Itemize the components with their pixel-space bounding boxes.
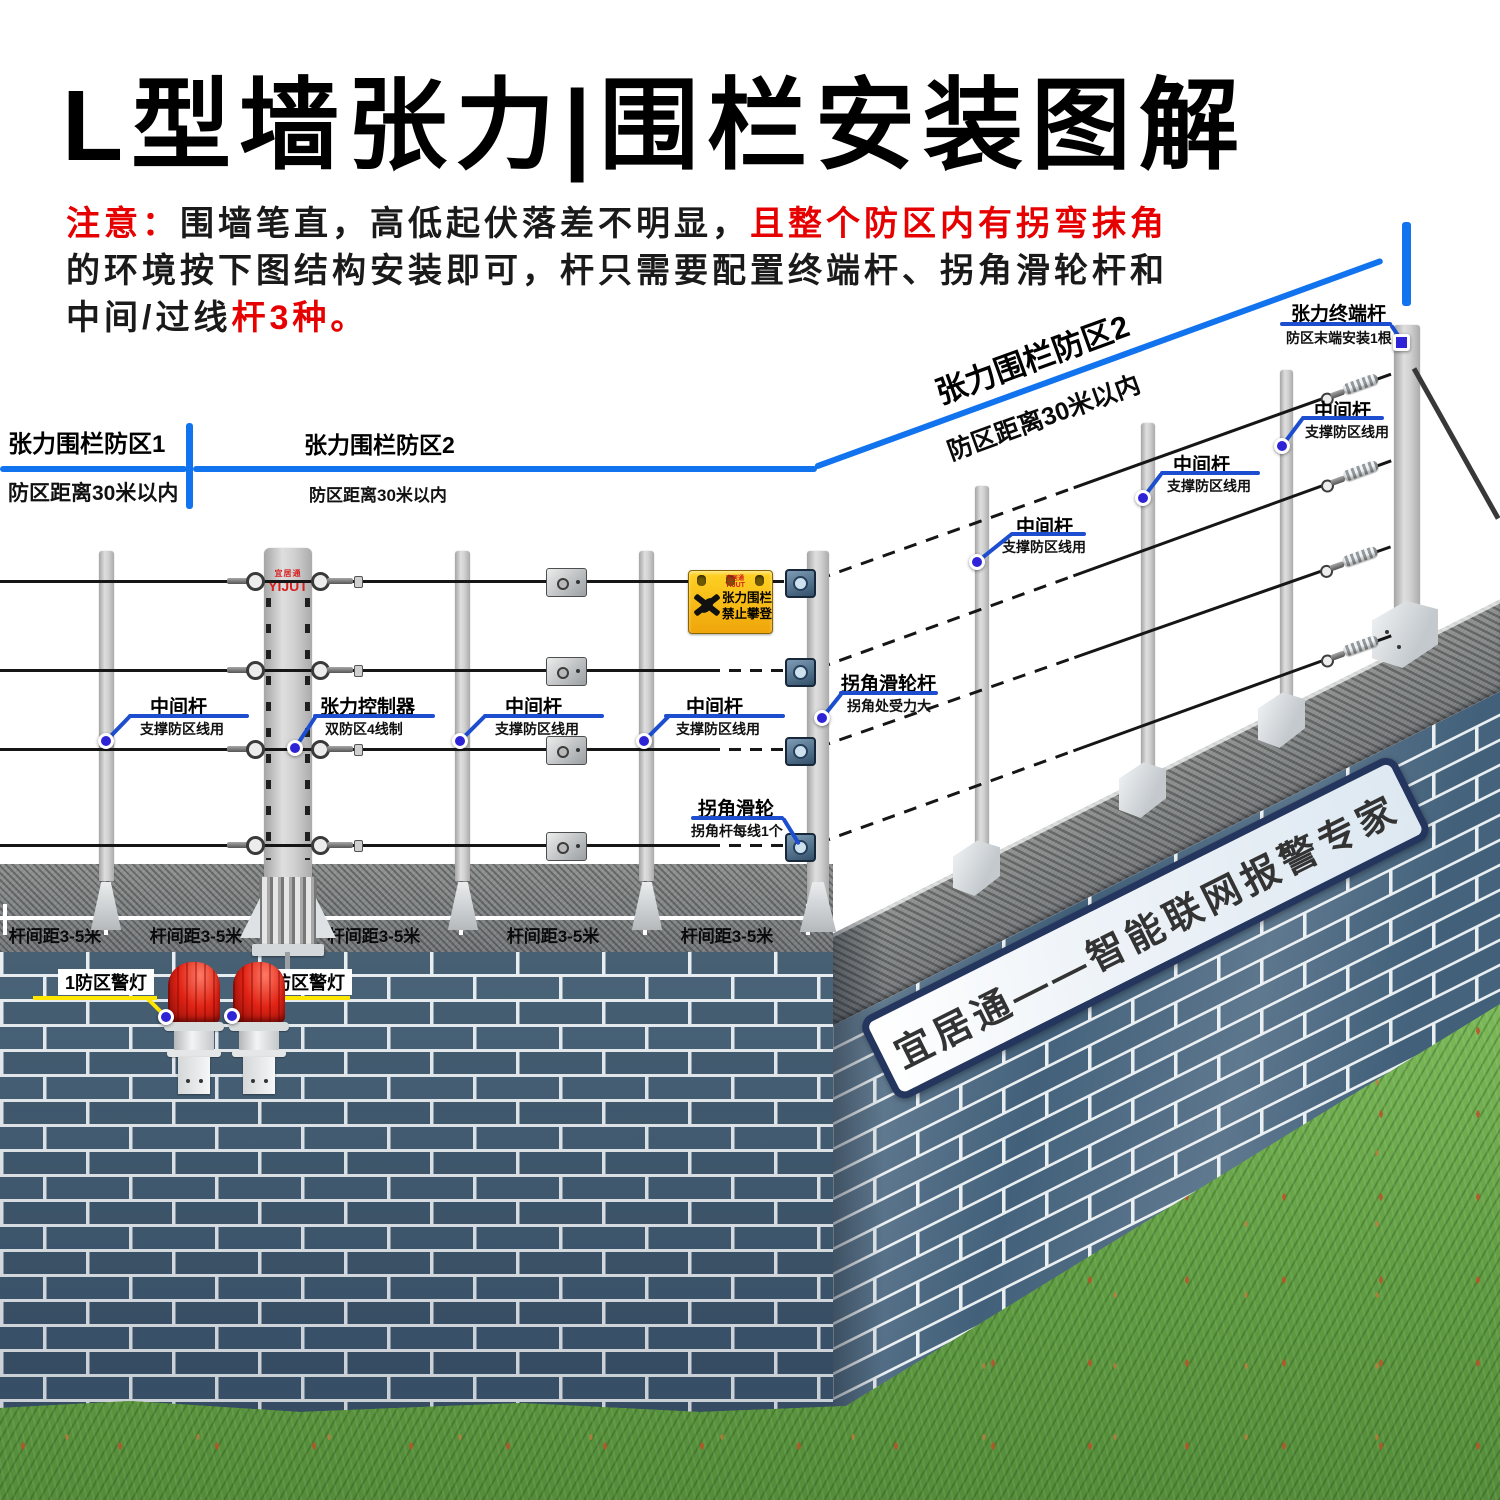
rod-collar bbox=[354, 744, 363, 756]
page-title: L型墙张力|围栏安装图解 bbox=[62, 44, 1247, 189]
label-underline bbox=[839, 691, 938, 695]
corner-pulley-device bbox=[785, 737, 816, 766]
tension-spring bbox=[1341, 545, 1379, 567]
poster-canvas: 宜居通——智能联网报警专家 杆间距3-5米 杆间距3-5米 杆间距3-5米 杆间… bbox=[0, 0, 1500, 1500]
junction-plate bbox=[546, 832, 587, 861]
note-line-3: 中间/过线杆3种。 bbox=[66, 290, 368, 339]
corner-pulley-device bbox=[785, 569, 816, 598]
spacing-label: 杆间距3-5米 bbox=[5, 922, 105, 947]
mid-post-label-sub: 支撑防区线用 bbox=[1305, 422, 1389, 442]
plate-screw bbox=[557, 667, 569, 679]
note-black-2: 的环境按下图结构安装即可，杆只需要配置终端杆、拐角滑轮杆和 bbox=[66, 252, 1168, 290]
junction-plate bbox=[546, 736, 587, 765]
controller-bolt-column bbox=[266, 598, 271, 860]
rod-collar bbox=[354, 840, 363, 852]
tension-spring bbox=[1342, 372, 1380, 394]
warning-sign: 宜居通 YIJUT 张力围栏 禁止攀登 bbox=[688, 570, 773, 634]
spacing-label: 杆间距3-5米 bbox=[677, 922, 777, 947]
mid-post bbox=[455, 551, 470, 881]
warning-light-body bbox=[174, 1031, 214, 1052]
plate-dot bbox=[576, 580, 580, 584]
label-dot bbox=[1393, 334, 1410, 351]
turnbuckle-rod bbox=[327, 667, 353, 673]
note-black-1: 围墙笔直，高低起伏落差不明显， bbox=[180, 205, 750, 243]
warning-light-flange bbox=[232, 1050, 286, 1057]
label-dot bbox=[452, 733, 468, 749]
warning-light-bracket bbox=[243, 1057, 275, 1094]
front-wall-bricks bbox=[0, 952, 833, 1412]
controller-base-striped bbox=[259, 877, 317, 947]
label-dot bbox=[98, 733, 114, 749]
mid-post-perspective bbox=[975, 486, 989, 858]
note-black-3: 中间/过线 bbox=[66, 299, 231, 337]
corner-pole-label-sub: 拐角处受力大 bbox=[847, 696, 931, 716]
zone2-line bbox=[193, 466, 817, 472]
mid-post bbox=[99, 551, 114, 881]
junction-plate bbox=[546, 657, 587, 686]
bracket-screw bbox=[264, 1079, 268, 1083]
label-dot bbox=[1135, 490, 1151, 506]
label-underline bbox=[1160, 471, 1260, 475]
mid-post-label-sub: 支撑防区线用 bbox=[1167, 476, 1251, 496]
warning-light-collar bbox=[164, 1022, 224, 1031]
label-dot bbox=[287, 740, 303, 756]
note-red-3: 杆3种。 bbox=[231, 299, 368, 337]
label-underline bbox=[128, 714, 249, 718]
stay-cable bbox=[1412, 367, 1500, 519]
junction-plate bbox=[546, 568, 587, 597]
base-screw bbox=[1385, 630, 1389, 634]
sign-text-line2: 禁止攀登 bbox=[722, 607, 772, 623]
bug-icon bbox=[691, 585, 723, 627]
wire-dashed-segment bbox=[817, 574, 1074, 669]
label-underline bbox=[664, 714, 785, 718]
wire-eyelet bbox=[246, 661, 265, 680]
plate-dot bbox=[576, 844, 580, 848]
wire-eyelet bbox=[246, 572, 265, 591]
turnbuckle-rod bbox=[327, 578, 353, 584]
label-underline bbox=[313, 714, 435, 718]
zone1-title: 张力围栏防区1 bbox=[8, 424, 165, 459]
turnbuckle-rod bbox=[327, 842, 353, 848]
mid-post bbox=[639, 551, 654, 881]
mid-post-label-sub: 支撑防区线用 bbox=[140, 719, 224, 739]
zone1-line bbox=[0, 466, 187, 472]
bracket-screw bbox=[186, 1079, 190, 1083]
turnbuckle-rod bbox=[327, 746, 353, 752]
light1-underline bbox=[33, 996, 157, 1000]
sign-text: 张力围栏 禁止攀登 bbox=[722, 591, 772, 622]
plate-dot bbox=[576, 669, 580, 673]
plate-dot bbox=[576, 748, 580, 752]
zone2-title: 张力围栏防区2 bbox=[304, 426, 455, 460]
zone-divider-bar bbox=[186, 423, 193, 509]
zone-end-bar bbox=[1402, 222, 1411, 306]
zone2-sub: 防区距离30米以内 bbox=[309, 481, 447, 506]
spacing-label: 杆间距3-5米 bbox=[146, 922, 246, 947]
bracket-screw bbox=[251, 1079, 255, 1083]
plate-screw bbox=[557, 746, 569, 758]
warning-light-bracket bbox=[178, 1057, 210, 1094]
zone-wire-perspective bbox=[811, 456, 1399, 671]
controller-label-sub: 双防区4线制 bbox=[325, 719, 403, 739]
base-screw bbox=[1397, 645, 1401, 649]
bracket-screw bbox=[199, 1079, 203, 1083]
mid-post-perspective bbox=[1141, 423, 1155, 795]
wire-eyelet bbox=[246, 740, 265, 759]
tension-spring bbox=[1342, 459, 1380, 482]
plate-screw bbox=[557, 578, 569, 590]
corner-pulley-device bbox=[785, 658, 816, 687]
label-dot bbox=[1274, 438, 1290, 454]
mid-post-label-sub: 支撑防区线用 bbox=[676, 719, 760, 739]
warning-light-collar bbox=[229, 1022, 289, 1031]
warning-light-dome bbox=[233, 962, 285, 1023]
plate-screw bbox=[557, 842, 569, 854]
wire-dashed-segment bbox=[817, 749, 1074, 844]
warning-light-dome bbox=[168, 962, 220, 1023]
corner-pulley-label-sub: 拐角杆每线1个 bbox=[691, 821, 783, 841]
warning-light-body bbox=[239, 1031, 279, 1052]
light1-label-text: 1防区警灯 bbox=[65, 969, 147, 995]
mid-post-label-sub: 支撑防区线用 bbox=[1002, 537, 1086, 557]
terminal-label-sub: 防区末端安装1根 bbox=[1286, 328, 1392, 348]
label-underline bbox=[1301, 416, 1384, 420]
wire-eyelet bbox=[246, 836, 265, 855]
note-red-1: 且整个防区内有拐弯抹角 bbox=[750, 205, 1168, 243]
label-underline bbox=[1010, 532, 1086, 536]
rod-collar bbox=[354, 576, 363, 588]
corner-pulley-device bbox=[785, 833, 816, 862]
spacing-label: 杆间距3-5米 bbox=[503, 922, 603, 947]
label-underline bbox=[483, 714, 604, 718]
warning-light-flange bbox=[167, 1050, 221, 1057]
spacing-scale-line bbox=[0, 916, 812, 920]
pulley-wheel bbox=[793, 744, 808, 759]
rod-collar bbox=[354, 665, 363, 677]
note-tag: 注意： bbox=[66, 205, 180, 243]
label-dot bbox=[636, 733, 652, 749]
label-dot bbox=[969, 554, 985, 570]
spacing-label: 杆间距3-5米 bbox=[324, 922, 424, 947]
note-line-2: 的环境按下图结构安装即可，杆只需要配置终端杆、拐角滑轮杆和 bbox=[66, 243, 1168, 292]
label-dot bbox=[814, 710, 830, 726]
light2-dot bbox=[224, 1008, 240, 1024]
label-underline bbox=[1280, 322, 1392, 326]
mid-post-label-sub: 支撑防区线用 bbox=[495, 719, 579, 739]
pulley-wheel bbox=[793, 665, 808, 680]
note-line-1: 注意：围墙笔直，高低起伏落差不明显，且整个防区内有拐弯抹角 bbox=[66, 196, 1168, 245]
light1-dot bbox=[158, 1009, 174, 1025]
zone1-sub: 防区距离30米以内 bbox=[8, 477, 178, 507]
light1-label: 1防区警灯 bbox=[58, 969, 154, 995]
pulley-wheel bbox=[793, 576, 808, 591]
sign-text-line1: 张力围栏 bbox=[722, 591, 772, 607]
label-underline bbox=[691, 816, 784, 820]
